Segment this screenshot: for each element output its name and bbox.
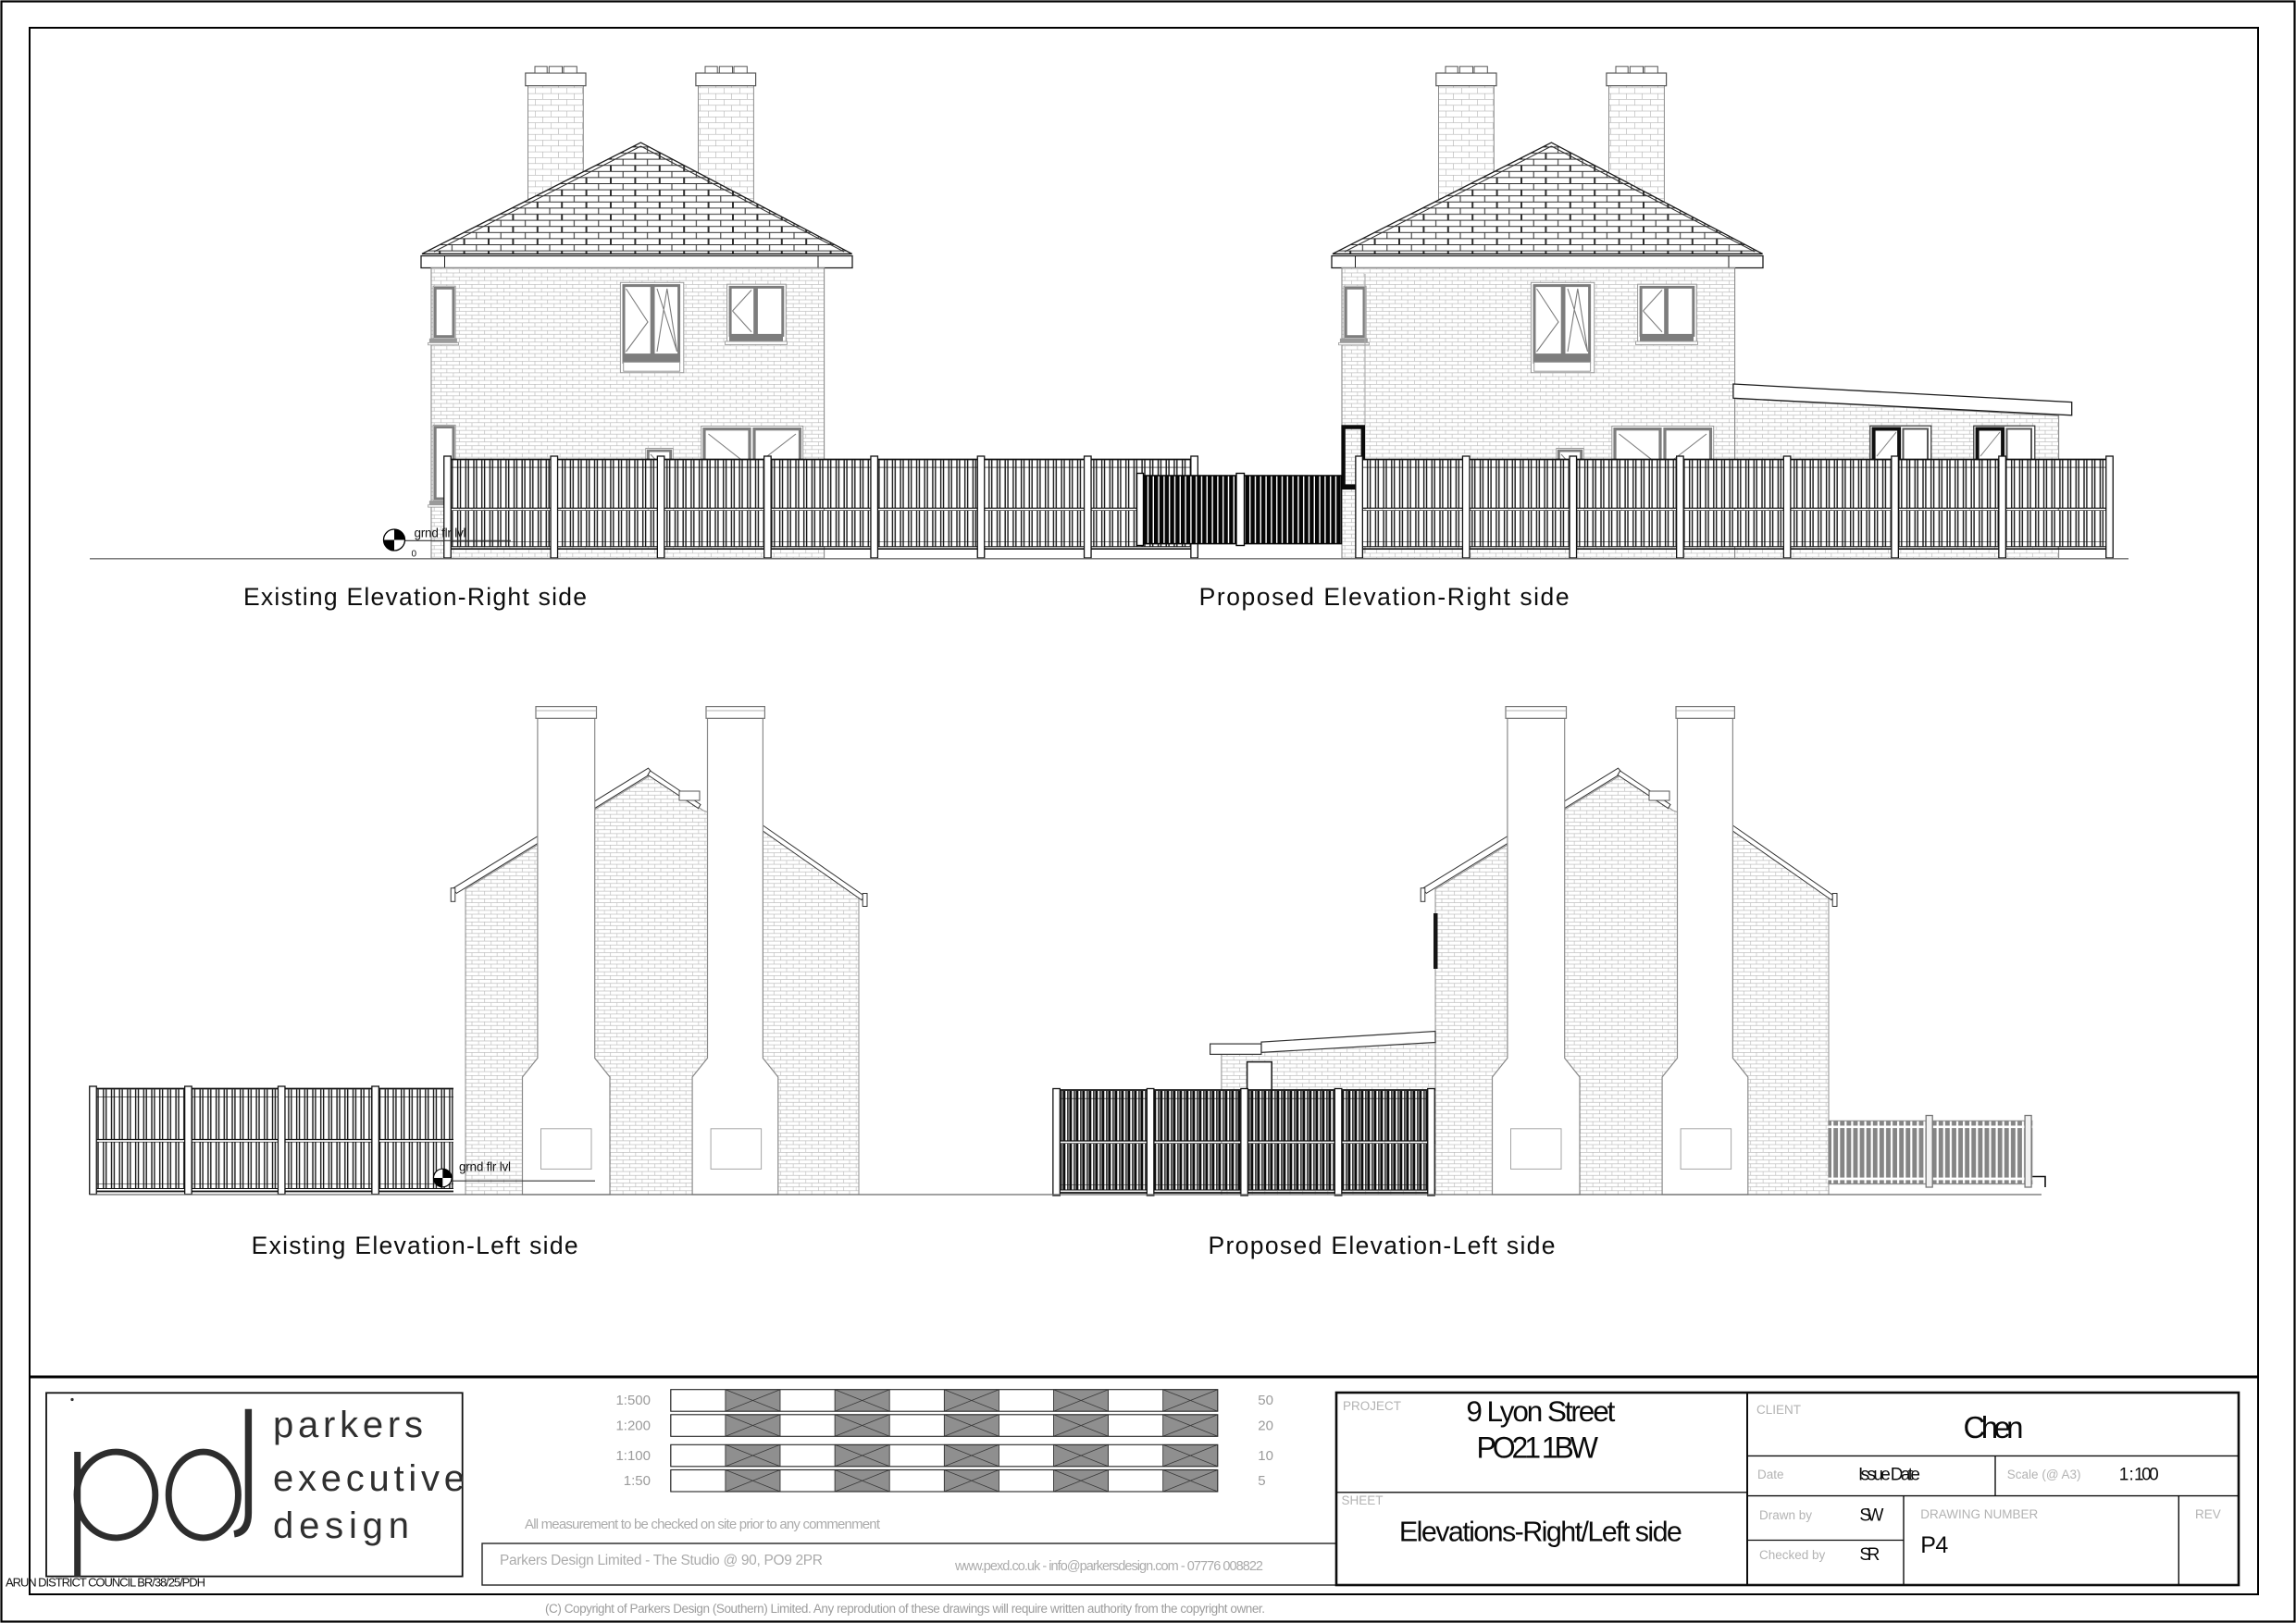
svg-text:PO21 1BW: PO21 1BW <box>1476 1431 1598 1465</box>
svg-text:P 4: P 4 <box>1920 1532 1948 1558</box>
svg-text:SR: SR <box>1859 1545 1880 1565</box>
svg-text:www.pexd.co.uk - info@parkers: www.pexd.co.uk - info@parkersdesign.com … <box>954 1559 1263 1574</box>
svg-text:CLIENT: CLIENT <box>1756 1403 1801 1417</box>
svg-text:grnd flr lvl: grnd flr lvl <box>415 527 466 540</box>
svg-text:1:200: 1:200 <box>615 1418 651 1433</box>
svg-text:(C) Copyright of Parkers Desig: (C) Copyright of Parkers Design (Souther… <box>545 1602 1265 1616</box>
svg-text:Parkers Design Limited - The S: Parkers Design Limited - The Studio @ 90… <box>500 1553 823 1568</box>
svg-text:design: design <box>273 1505 409 1546</box>
svg-text:9 Lyon Street: 9 Lyon Street <box>1466 1394 1615 1428</box>
svg-text:Checked by: Checked by <box>1759 1548 1826 1562</box>
svg-text:1:100: 1:100 <box>615 1448 651 1464</box>
svg-text:Drawn by: Drawn by <box>1759 1508 1812 1522</box>
svg-text:REV: REV <box>2195 1507 2221 1521</box>
svg-text:DRAWING NUMBER: DRAWING NUMBER <box>1920 1507 2038 1521</box>
svg-text:Elevations-Right/Left side: Elevations-Right/Left side <box>1399 1517 1682 1548</box>
svg-text:Chen: Chen <box>1964 1410 2024 1444</box>
svg-text:Proposed Elevation-Left side: Proposed Elevation-Left side <box>1209 1232 1556 1259</box>
svg-text:Scale (@ A3): Scale (@ A3) <box>2007 1468 2081 1481</box>
svg-text:SHEET: SHEET <box>1342 1493 1384 1507</box>
svg-text:Existing Elevation-Right side: Existing Elevation-Right side <box>243 583 587 611</box>
svg-text:Date: Date <box>1757 1468 1784 1481</box>
svg-text:Existing Elevation-Left side: Existing Elevation-Left side <box>252 1232 578 1259</box>
svg-text:50: 50 <box>1258 1393 1273 1408</box>
svg-text:grnd flr lvl: grnd flr lvl <box>459 1160 511 1174</box>
svg-text:20: 20 <box>1258 1418 1273 1433</box>
svg-text:0: 0 <box>412 550 417 560</box>
svg-text:1:500: 1:500 <box>615 1393 651 1408</box>
svg-text:PROJECT: PROJECT <box>1343 1399 1401 1413</box>
svg-text:5: 5 <box>1258 1473 1265 1489</box>
svg-text:All measurement to be checked: All measurement to be checked on site pr… <box>525 1517 881 1532</box>
svg-text:Proposed Elevation-Right side: Proposed Elevation-Right side <box>1199 583 1570 611</box>
svg-text:ARUN DISTRICT COUNCIL BR/38/25: ARUN DISTRICT COUNCIL BR/38/25/PDH <box>6 1576 205 1590</box>
svg-text:1 : 100: 1 : 100 <box>2119 1466 2159 1485</box>
svg-text:10: 10 <box>1258 1448 1273 1464</box>
svg-text:1:50: 1:50 <box>624 1473 651 1489</box>
svg-text:executive: executive <box>273 1458 465 1499</box>
svg-text:SW: SW <box>1859 1506 1883 1526</box>
svg-text:Issue Date: Issue Date <box>1858 1466 1920 1485</box>
